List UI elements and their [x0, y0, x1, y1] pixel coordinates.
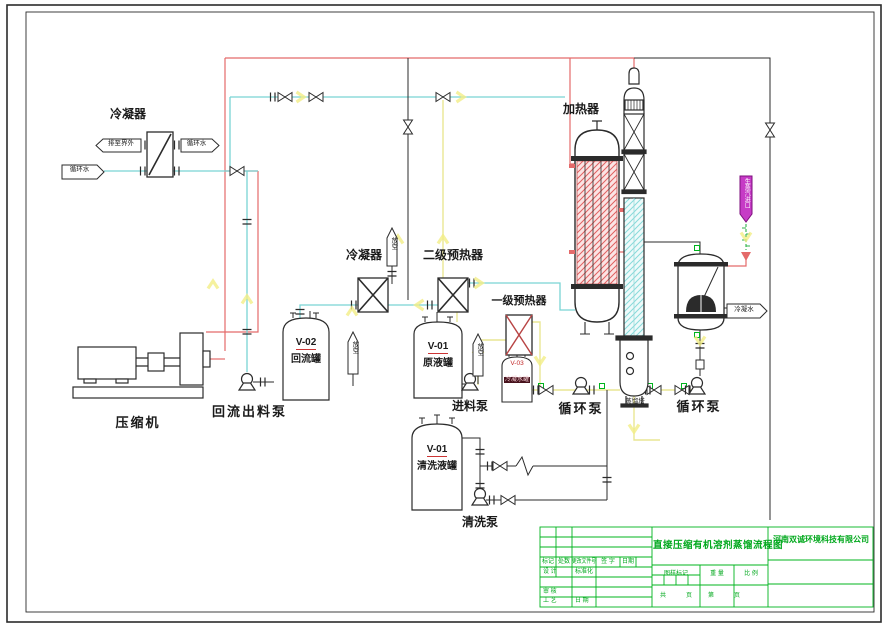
wash-pump-symbol — [472, 489, 488, 506]
tb-review[interactable]: 审 核 — [543, 589, 557, 595]
tb-sheet-no[interactable]: 第 — [708, 593, 714, 599]
tb-mark[interactable]: 标记 — [540, 559, 556, 565]
circ-pump-right-symbol — [689, 378, 705, 395]
tb-scale[interactable]: 比 例 — [734, 571, 768, 577]
compressor-label[interactable]: 压缩机 — [98, 416, 178, 430]
tag-cooling-water-supply[interactable]: 循环水 — [62, 167, 97, 174]
feed-pump-label[interactable]: 进料泵 — [444, 400, 496, 413]
condenser-1[interactable] — [147, 132, 173, 177]
tag-vent-b[interactable]: 放空 — [350, 341, 357, 371]
v02-tag[interactable]: V-02 — [283, 338, 329, 349]
v01-wash-name[interactable]: 清洗液罐 — [412, 462, 462, 473]
circ-pump-left-symbol — [573, 378, 589, 395]
company-name[interactable]: 河南双诚环境科技有限公司 — [769, 536, 873, 544]
separator-vessel[interactable] — [674, 254, 728, 369]
preheater2-label[interactable]: 二级预热器 — [416, 249, 490, 262]
preheater-2[interactable] — [438, 278, 468, 312]
tb-page2[interactable]: 页 — [734, 593, 740, 599]
distillation-column[interactable] — [616, 68, 652, 407]
red-piping[interactable] — [206, 58, 746, 359]
circ-pump-left-label[interactable]: 循环泵 — [552, 402, 610, 416]
preheater-1[interactable] — [506, 315, 532, 355]
tb-change-doc[interactable]: 更改文件号 — [572, 559, 591, 565]
v03-name[interactable]: 冷凝水罐 — [503, 369, 531, 386]
tag-cooling-water-return[interactable]: 循环水 — [181, 141, 212, 148]
red-arrowhead[interactable] — [741, 252, 751, 261]
tb-date2[interactable]: 日 期 — [575, 598, 589, 604]
v01-raw-name[interactable]: 原液罐 — [414, 359, 462, 370]
drawing-sheet: 冷凝器 排至界外 循环水 循环水 压缩机 回流出料泵 V-02 回流罐 冷凝器 … — [0, 0, 888, 628]
wash-pump-label[interactable]: 清洗泵 — [454, 516, 506, 529]
v01-raw-tag[interactable]: V-01 — [414, 342, 462, 353]
tb-weight[interactable]: 重 量 — [700, 571, 734, 577]
tb-standardize[interactable]: 标准化 — [575, 569, 593, 575]
tb-total[interactable]: 共 — [660, 593, 666, 599]
tag-vent-a[interactable]: 放空 — [389, 237, 396, 267]
cyan-piping[interactable] — [104, 97, 575, 372]
drawing-title[interactable]: 直接压缩有机溶剂蒸馏流程图 — [653, 541, 767, 551]
heater[interactable] — [569, 121, 625, 334]
reflux-pump-symbol — [239, 374, 255, 391]
tag-condensate-out[interactable]: 冷凝水 — [728, 307, 760, 314]
preheater1-label[interactable]: 一级预热器 — [486, 296, 552, 308]
tb-process[interactable]: 工 艺 — [543, 598, 557, 604]
condenser2-label[interactable]: 冷凝器 — [340, 249, 388, 262]
tb-count[interactable]: 处数 — [556, 559, 572, 565]
reflux-pump-label[interactable]: 回流出料泵 — [212, 405, 287, 419]
v03-tag[interactable]: V-03 — [502, 361, 532, 368]
tb-page[interactable]: 页 — [686, 593, 692, 599]
condenser1-label[interactable]: 冷凝器 — [96, 108, 160, 121]
tb-drawing-mark[interactable]: 图样标记 — [652, 571, 700, 577]
tb-design[interactable]: 设 计 — [543, 569, 557, 575]
tag-discharge-out[interactable]: 排至界外 — [101, 141, 141, 148]
circ-pump-right-label[interactable]: 循环泵 — [670, 400, 728, 414]
column-label[interactable]: 蒸馏塔 — [616, 399, 654, 406]
v02-name[interactable]: 回流罐 — [283, 355, 329, 366]
tb-signature[interactable]: 签 字 — [596, 559, 620, 565]
tag-vent-c[interactable]: 放空 — [475, 343, 482, 373]
v01-wash-tag[interactable]: V-01 — [412, 445, 462, 456]
drawing-canvas — [0, 0, 888, 628]
tb-date[interactable]: 日期 — [620, 559, 636, 565]
heater-label[interactable]: 加热器 — [556, 103, 606, 116]
tag-steam-inlet[interactable]: 生蒸汽进口 — [743, 178, 749, 216]
condenser-2[interactable] — [358, 278, 388, 312]
compressor[interactable] — [73, 333, 210, 398]
